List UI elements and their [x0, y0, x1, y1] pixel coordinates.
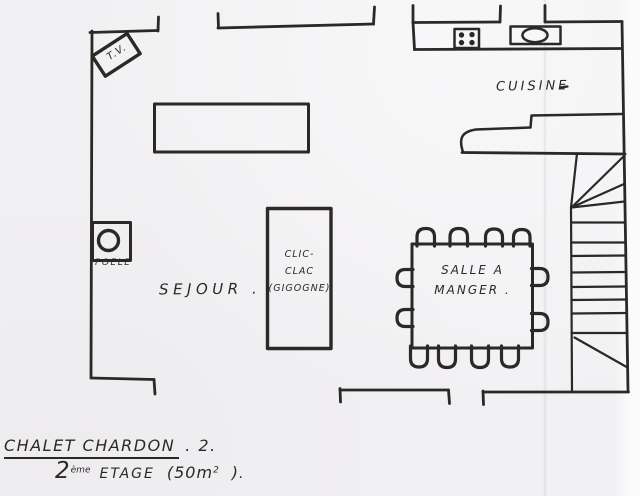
window-jamb: [500, 6, 501, 22]
exterior-walls: [90, 6, 629, 405]
subtitle-period: .: [239, 466, 244, 482]
plan-title-name: CHALET CHARDON: [4, 436, 179, 459]
counter-front-edge: [415, 49, 622, 50]
floor-ordinal-suffix: ème: [71, 465, 91, 475]
wall-top-a: [90, 31, 158, 33]
stair-tread: [572, 272, 627, 273]
sofa-bed-label: CLIC- CLAC (GIGOGNE): [267, 246, 332, 297]
stair-tread: [572, 287, 627, 288]
burner-icon: [459, 40, 464, 45]
burner-icon: [469, 32, 474, 37]
sofa-bed-label-line1: CLIC-: [267, 246, 332, 263]
burner-icon: [459, 32, 464, 37]
window-jamb: [218, 14, 219, 29]
stair-tread: [572, 256, 626, 257]
window-jamb: [158, 17, 159, 31]
sofa-bed-label-line3: (GIGOGNE): [267, 280, 332, 297]
winder-tread: [575, 338, 628, 368]
dining-room-label-line1: SALLE A: [412, 260, 533, 280]
wall-bottom-left: [91, 378, 154, 380]
living-room-label: SEJOUR .: [159, 280, 261, 299]
floor-area-exponent: 2: [213, 465, 220, 475]
wall-right: [622, 22, 628, 392]
kitchen-lower-wall: [462, 153, 625, 155]
wall-top-c: [413, 22, 500, 23]
window-jamb: [154, 380, 155, 395]
stair-stringer: [571, 154, 577, 208]
wall-top-d: [545, 22, 622, 23]
wall-top-b: [218, 24, 374, 28]
kitchen-bar-counter: [461, 114, 621, 152]
poele-stove: [93, 223, 131, 261]
stove-ring-icon: [99, 231, 119, 251]
sink-basin-icon: [523, 28, 548, 42]
dining-room-label: SALLE A MANGER .: [412, 260, 533, 300]
floor-number: 2: [55, 458, 71, 484]
floor-area: (50m: [167, 463, 213, 482]
window-jamb: [449, 390, 450, 404]
kitchen-label: CUISINE: [496, 78, 570, 94]
window-jamb: [374, 7, 375, 24]
stair-tread: [572, 313, 627, 314]
sofa: [155, 104, 309, 152]
plan-title: CHALET CHARDON. 2.: [4, 436, 217, 459]
cooktop-icon: [455, 29, 480, 48]
stair-tread: [572, 300, 627, 301]
stove-label: POELE: [95, 258, 131, 268]
dining-room-label-line2: MANGER .: [412, 280, 533, 300]
plan-subtitle: 2èmeETAGE(50m2).: [55, 458, 245, 484]
burner-icon: [469, 40, 474, 45]
plan-title-suffix: . 2.: [185, 436, 216, 455]
floor-word: ETAGE: [99, 466, 154, 482]
staircase: [571, 154, 628, 392]
wall-left: [91, 31, 92, 378]
floor-area-close: ): [232, 463, 239, 482]
counter-left-edge: [413, 23, 415, 50]
winder-tread: [572, 157, 624, 208]
sofa-bed-label-line2: CLAC: [267, 263, 332, 280]
